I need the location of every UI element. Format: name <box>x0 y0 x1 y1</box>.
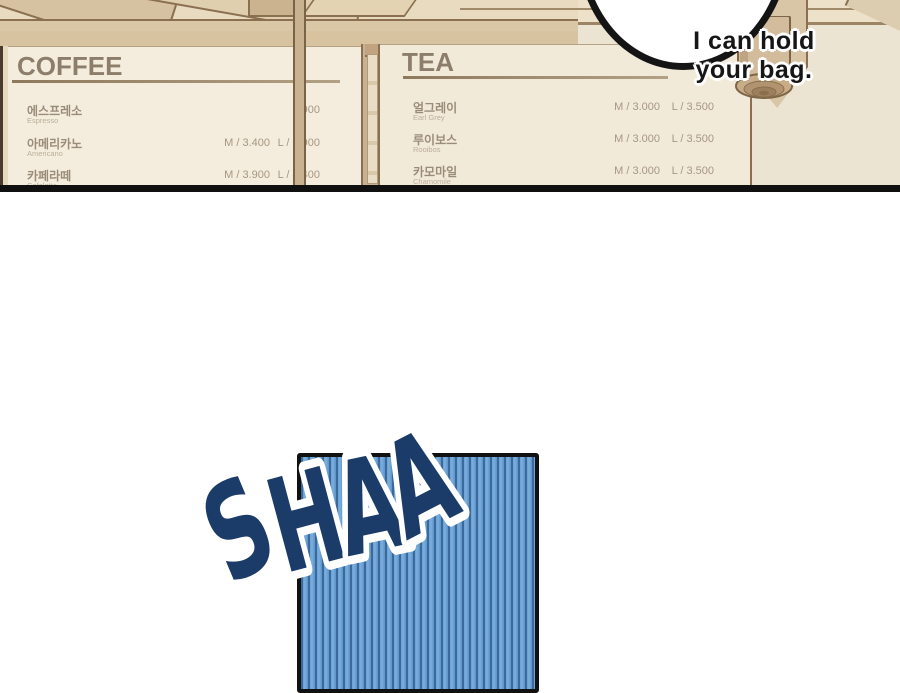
price-m: M / 3.400 <box>215 137 270 149</box>
price-l: L / 3.500 <box>666 165 714 177</box>
price-m: M / 3.000 <box>605 101 660 113</box>
price-m: M / 3.000 <box>605 165 660 177</box>
price-l: L / 3.500 <box>666 133 714 145</box>
speech-bubble-text: I can hold your bag. <box>668 27 840 85</box>
left-edge-post <box>0 46 3 185</box>
coffee-menu-title: COFFEE <box>17 51 122 82</box>
menu-item-name-en: Earl Grey <box>413 113 445 122</box>
tiled-wall-strip <box>361 44 380 185</box>
speech-line-1: I can hold <box>668 27 840 56</box>
menu-item-name-en: Americano <box>27 149 63 158</box>
price-m: M / 3.900 <box>215 169 270 181</box>
ceiling-plank-light <box>301 0 420 17</box>
tea-menu-title: TEA <box>402 47 454 78</box>
sfx-text: SHAA <box>179 392 479 625</box>
ceiling-plank-dark <box>248 0 298 17</box>
wooden-post <box>293 0 306 185</box>
menu-item-name-en: Rooibos <box>413 145 441 154</box>
panel-border-bottom <box>0 185 900 192</box>
coffee-title-underline <box>12 80 340 83</box>
tile-column <box>367 54 378 184</box>
coffee-menu-board: COFFEE 에스프레소 Espresso 2.900 아메리카노 Americ… <box>8 46 361 186</box>
price-m: M / 3.000 <box>605 133 660 145</box>
price-l: L / 3.500 <box>666 101 714 113</box>
cafe-scene-panel: COFFEE 에스프레소 Espresso 2.900 아메리카노 Americ… <box>0 0 900 192</box>
tea-title-underline <box>403 76 668 79</box>
comic-page: { "panel_top": { "coffee_menu": { "title… <box>0 0 900 680</box>
speech-line-2: your bag. <box>668 56 840 85</box>
sfx-shaa: SHAA <box>200 436 500 656</box>
menu-item-name-en: Espresso <box>27 116 58 125</box>
